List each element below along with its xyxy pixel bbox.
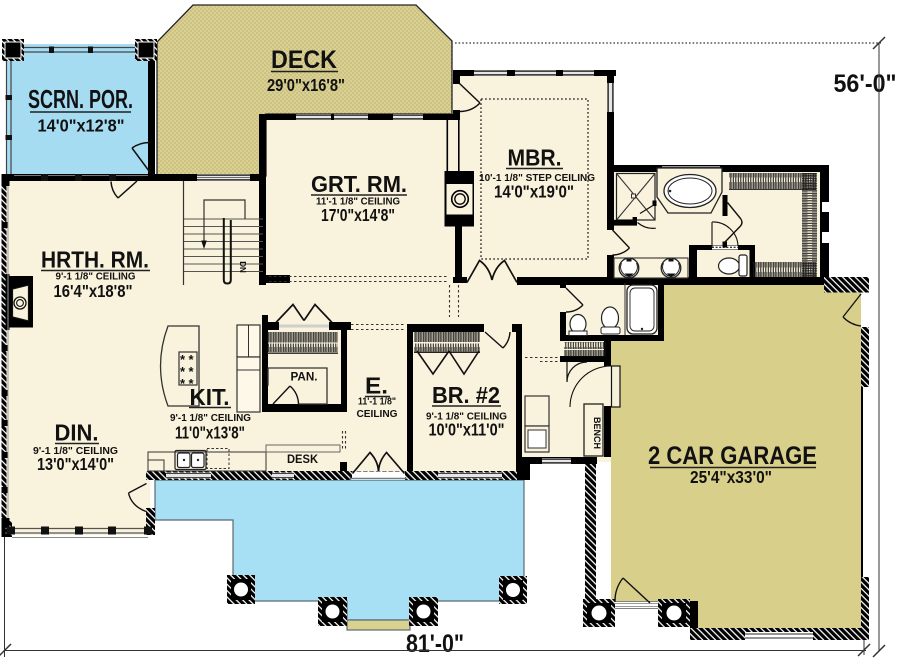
svg-text:HRTH. RM.: HRTH. RM.	[41, 247, 149, 273]
svg-text:MBR.: MBR.	[508, 145, 562, 171]
svg-text:14'0"x12'8": 14'0"x12'8"	[38, 116, 125, 136]
svg-text:25'4"x33'0": 25'4"x33'0"	[690, 467, 772, 487]
svg-text:DESK: DESK	[287, 454, 319, 466]
svg-text:13'0"x14'0": 13'0"x14'0"	[37, 454, 114, 474]
svg-text:BENCH: BENCH	[592, 417, 602, 449]
svg-text:10'0"x11'0": 10'0"x11'0"	[429, 420, 505, 440]
svg-text:11'0"x13'8": 11'0"x13'8"	[175, 423, 245, 443]
svg-text:DIN.: DIN.	[55, 420, 99, 446]
svg-text:KIT.: KIT.	[190, 384, 230, 410]
svg-text:DN: DN	[238, 261, 247, 273]
svg-text:56'-0": 56'-0"	[834, 70, 897, 98]
svg-text:29'0"x16'8": 29'0"x16'8"	[267, 75, 345, 95]
svg-text:CEILING: CEILING	[357, 408, 398, 420]
svg-text:BR. #2: BR. #2	[432, 382, 500, 408]
svg-text:16'4"x18'8": 16'4"x18'8"	[54, 281, 133, 301]
svg-text:17'0"x14'8": 17'0"x14'8"	[321, 205, 395, 225]
svg-text:81'-0": 81'-0"	[406, 630, 464, 658]
svg-text:11'-1 1/8": 11'-1 1/8"	[358, 396, 396, 408]
svg-text:2 CAR GARAGE: 2 CAR GARAGE	[648, 442, 817, 470]
svg-text:DECK: DECK	[271, 46, 337, 74]
svg-text:GRT. RM.: GRT. RM.	[311, 171, 407, 197]
svg-text:SCRN. POR.: SCRN. POR.	[28, 84, 133, 114]
svg-text:14'0"x19'0": 14'0"x19'0"	[494, 182, 574, 202]
svg-text:PAN.: PAN.	[291, 372, 318, 384]
